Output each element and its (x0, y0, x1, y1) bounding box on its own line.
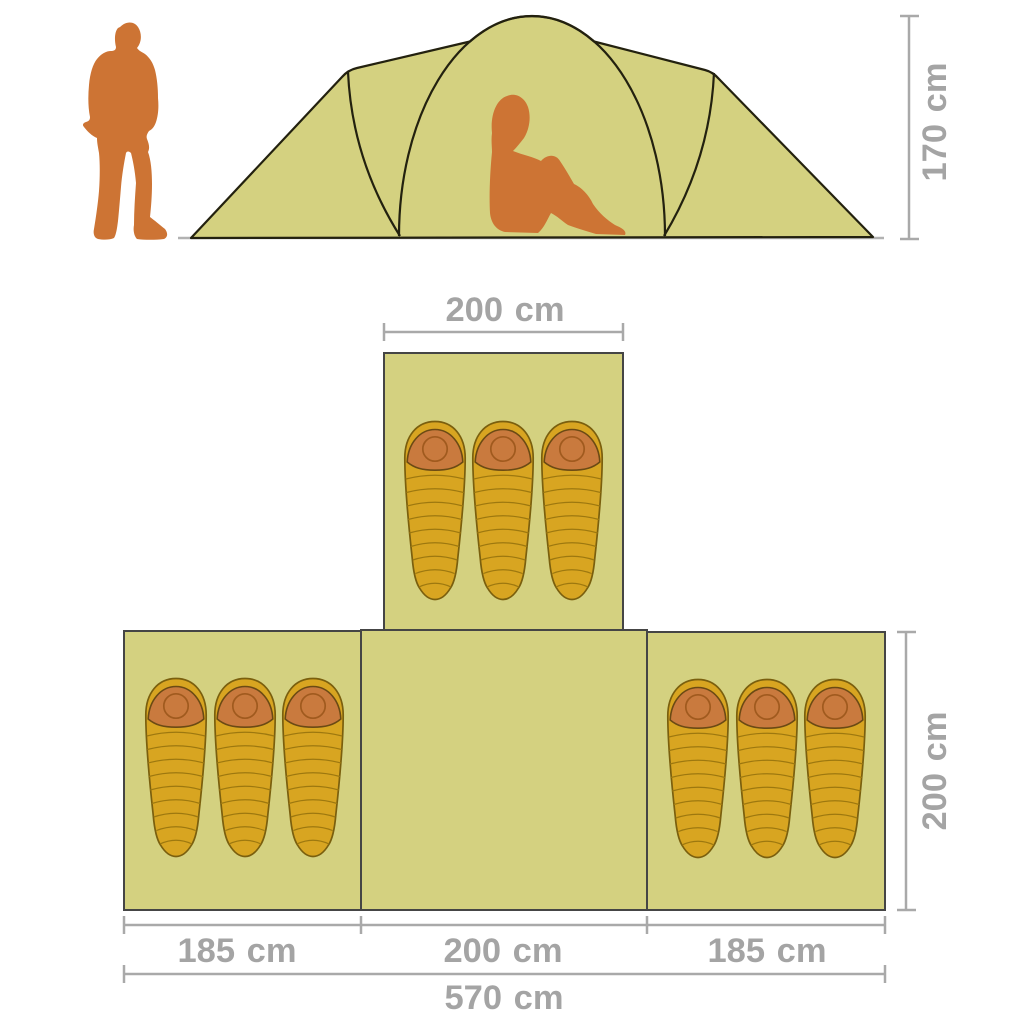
svg-text:185 cm: 185 cm (177, 932, 296, 970)
svg-text:170 cm: 170 cm (916, 62, 954, 181)
svg-text:570 cm: 570 cm (444, 979, 563, 1017)
svg-text:185 cm: 185 cm (707, 932, 826, 970)
svg-text:200 cm: 200 cm (916, 711, 954, 830)
svg-text:200 cm: 200 cm (443, 932, 562, 970)
svg-text:200 cm: 200 cm (445, 291, 564, 329)
